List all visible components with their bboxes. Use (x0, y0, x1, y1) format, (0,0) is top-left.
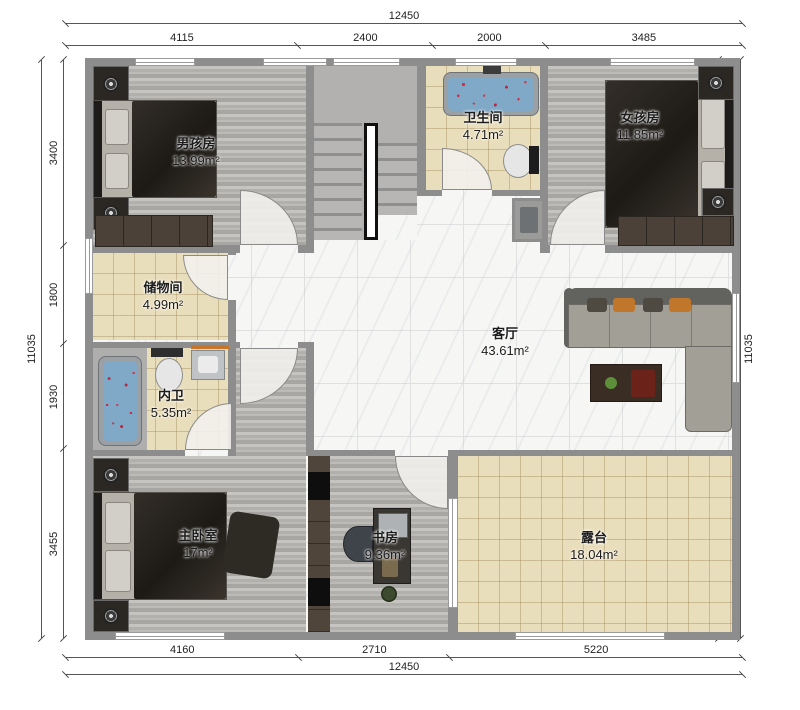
room-area: 9.36m² (325, 547, 445, 564)
window (115, 632, 225, 640)
pillow (105, 153, 129, 189)
dim-segment: 12450 (66, 10, 742, 28)
dim-segment: 12450 (66, 661, 742, 679)
wall (417, 190, 442, 196)
dim-left-segments: 3400 1800 1930 3455 (50, 60, 68, 638)
faucet-icon (483, 66, 501, 74)
wall (605, 245, 740, 253)
wall (448, 450, 732, 456)
dim-segment: 3485 (546, 32, 742, 50)
room-label-living: 客厅 43.61m² (445, 326, 565, 360)
shower-closet (512, 198, 545, 242)
dim-left-total: 11035 (28, 60, 46, 638)
room-name: 客厅 (445, 326, 565, 343)
dim-segment: 2710 (299, 644, 451, 662)
window (135, 58, 195, 66)
toilet-tank (151, 348, 183, 357)
shower-tray (520, 207, 538, 233)
room-area: 43.61m² (445, 343, 565, 360)
room-label-master: 主卧室 17m² (138, 528, 258, 562)
room-area: 17m² (138, 545, 258, 562)
dim-segment: 1930 (50, 344, 68, 449)
lamp-icon (103, 608, 119, 624)
room-label-boys: 男孩房 13.99m² (136, 136, 256, 170)
window (448, 498, 458, 608)
dim-value: 2710 (362, 644, 386, 656)
bookshelf-cabinet (308, 578, 330, 606)
dim-value: 11035 (26, 334, 38, 364)
dim-value: 3455 (48, 531, 60, 555)
sofa-pillow (643, 298, 663, 312)
room-label-girls: 女孩房 11.85m² (580, 110, 700, 144)
towel-bar (191, 345, 229, 349)
dim-segment: 2400 (298, 32, 433, 50)
dim-value: 2000 (477, 32, 501, 44)
wall (540, 245, 550, 253)
toilet-tank (529, 146, 539, 174)
wall (306, 342, 314, 456)
room-name: 男孩房 (136, 136, 256, 153)
window (455, 58, 517, 66)
lamp-icon (103, 76, 119, 92)
room-area: 4.99m² (103, 297, 223, 314)
dim-value: 12450 (389, 10, 420, 22)
nightstand (93, 458, 129, 492)
window (85, 238, 93, 294)
wardrobe (618, 216, 734, 246)
lamp-icon (103, 467, 119, 483)
dim-value: 2400 (353, 32, 377, 44)
dim-value: 4160 (170, 644, 194, 656)
sink (191, 350, 225, 380)
window (732, 293, 740, 383)
room-label-storage: 储物间 4.99m² (103, 280, 223, 314)
pillow (701, 93, 725, 149)
sink-basin (198, 356, 218, 373)
wall (298, 245, 314, 253)
lamp-icon (710, 194, 726, 210)
dim-value: 4115 (170, 32, 194, 44)
bookshelf-cabinet (308, 472, 330, 500)
dim-segment: 3400 (50, 60, 68, 246)
stair-divider-wall (364, 123, 378, 240)
room-name: 主卧室 (138, 528, 258, 545)
nightstand (93, 600, 129, 632)
dim-segment: 3455 (50, 449, 68, 638)
dim-value: 12450 (389, 661, 420, 673)
sofa-pillow (669, 298, 691, 312)
window (333, 58, 400, 66)
room-label-study: 书房 9.36m² (325, 530, 445, 564)
dim-value: 1930 (48, 384, 60, 408)
nightstand (698, 66, 734, 100)
stair-flight-left (314, 123, 362, 240)
room-label-bath: 卫生间 4.71m² (423, 110, 543, 144)
wall (298, 342, 306, 348)
wardrobe (95, 215, 213, 247)
plant-icon (605, 377, 617, 389)
room-area: 4.71m² (423, 127, 543, 144)
room-name: 储物间 (103, 280, 223, 297)
coffee-table (590, 364, 662, 402)
room-area: 11.85m² (580, 127, 700, 144)
room-area: 13.99m² (136, 153, 256, 170)
window (263, 58, 327, 66)
pillow (105, 109, 129, 145)
tea-tray (631, 370, 655, 397)
room-name: 女孩房 (580, 110, 700, 127)
window (610, 58, 695, 66)
dim-value: 3485 (632, 32, 656, 44)
lamp-icon (708, 75, 724, 91)
room-area: 5.35m² (111, 405, 231, 422)
dim-value: 3400 (48, 141, 60, 165)
dim-top-segments: 4115 2400 2000 3485 (66, 32, 742, 50)
comforter (606, 81, 698, 227)
dim-value: 5220 (584, 644, 608, 656)
wall (228, 245, 236, 255)
wall (306, 66, 314, 245)
window (515, 632, 665, 640)
nightstand (702, 188, 734, 216)
bathtub-water (448, 77, 534, 111)
headboard (94, 493, 102, 599)
dim-bottom-total: 12450 (66, 661, 742, 679)
dim-value: 11035 (743, 334, 755, 364)
pillow (105, 502, 131, 544)
sofa-pillow (613, 298, 635, 312)
dim-top-total: 12450 (66, 10, 742, 28)
room-name: 露台 (534, 530, 654, 547)
room-area: 18.04m² (534, 547, 654, 564)
floor-plan-page: { "plan": { "dims": { "top_total": "1245… (0, 0, 800, 710)
dim-segment: 5220 (450, 644, 742, 662)
wall (93, 450, 185, 456)
stair-landing-bottom (378, 215, 417, 240)
stair-flight-right (378, 143, 417, 215)
room-name: 卫生间 (423, 110, 543, 127)
wall (492, 190, 540, 196)
room-label-inner-bath: 内卫 5.35m² (111, 388, 231, 422)
room-name: 内卫 (111, 388, 231, 405)
sofa-pillow (587, 298, 607, 312)
toilet (155, 358, 183, 392)
room-name: 书房 (325, 530, 445, 547)
floor-plan: 男孩房 13.99m² 卫生间 4.71m² 女孩房 11.85m² 储物间 4… (85, 58, 740, 640)
pillow (105, 550, 131, 592)
dim-segment: 4160 (66, 644, 299, 662)
dim-segment: 4115 (66, 32, 298, 50)
dim-segment: 2000 (433, 32, 546, 50)
nightstand (93, 66, 129, 102)
dim-segment: 1800 (50, 246, 68, 344)
dim-value: 1800 (48, 283, 60, 307)
dim-bottom-segments: 4160 2710 5220 (66, 644, 742, 662)
dim-segment: 11035 (28, 60, 46, 638)
headboard (94, 101, 102, 197)
plant-icon (381, 586, 397, 602)
room-label-terrace: 露台 18.04m² (534, 530, 654, 564)
sofa-chaise (685, 346, 732, 432)
